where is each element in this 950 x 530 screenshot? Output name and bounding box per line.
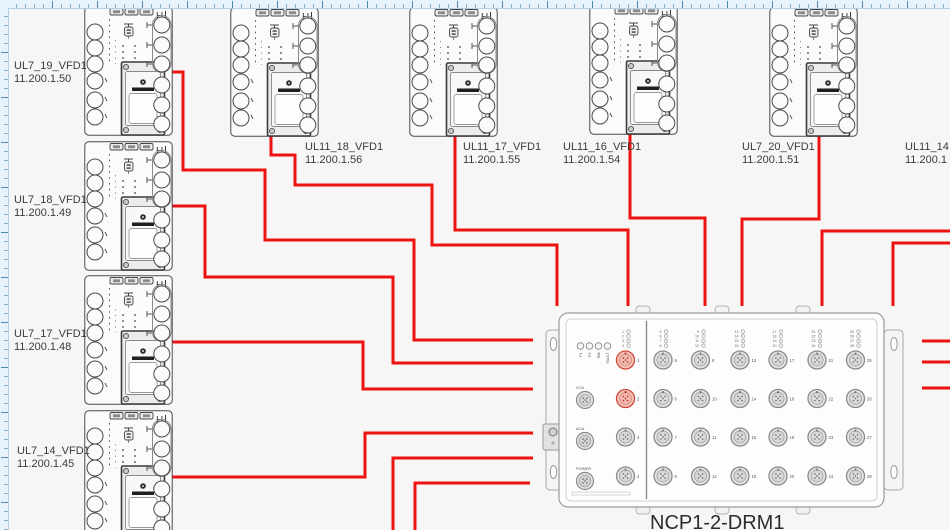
port-number: 24	[829, 474, 834, 479]
cable[interactable]	[172, 433, 533, 477]
port-led	[664, 334, 668, 338]
port-led	[664, 330, 668, 334]
port-led	[818, 334, 822, 338]
port-number: 25	[867, 358, 872, 363]
port-led-number: 16	[735, 344, 739, 348]
port-led-number: 15	[735, 339, 739, 343]
port-led-number: 27	[850, 339, 854, 343]
port-led	[741, 330, 745, 334]
port-led-number: 6	[660, 335, 662, 339]
status-led-label: P2	[588, 353, 592, 357]
device-label: UL11_18_VFD111.200.1.56	[305, 141, 383, 167]
diagram-canvas[interactable]: H	[0, 0, 950, 530]
port-led	[741, 344, 745, 348]
port-led	[779, 334, 783, 338]
port-number: 27	[867, 435, 872, 440]
port-led-number: 22	[812, 335, 816, 339]
ruler-vertical	[0, 8, 9, 530]
cable[interactable]	[893, 243, 950, 306]
vfd-device[interactable]	[770, 8, 857, 136]
port-number: 22	[829, 396, 834, 401]
port-number: 14	[752, 396, 757, 401]
device-label: UL7_20_VFD111.200.1.51	[742, 141, 815, 167]
port-led-number: 10	[695, 335, 699, 339]
status-led-rm	[595, 343, 602, 350]
port-led-number: 9	[697, 330, 699, 334]
status-led-label: FAULT	[606, 352, 610, 364]
port-led-number: 2	[622, 335, 624, 339]
port-led-number: 12	[695, 344, 699, 348]
port-led	[702, 330, 706, 334]
port-led	[627, 334, 631, 338]
device-label: UL7_18_VFD111.200.1.49	[14, 194, 87, 220]
port-led	[664, 339, 668, 343]
status-led-p1	[577, 343, 584, 350]
connector-power[interactable]: POWER	[576, 466, 594, 490]
port-number: 26	[867, 396, 872, 401]
connector-label: ACA	[576, 426, 585, 431]
vfd-device[interactable]	[590, 6, 677, 134]
port-led	[818, 330, 822, 334]
port-led-number: 7	[660, 339, 662, 343]
port-led	[627, 330, 631, 334]
port-led	[779, 339, 783, 343]
port-led	[779, 344, 783, 348]
port-led-number: 24	[812, 344, 816, 348]
status-led-p2	[586, 343, 593, 350]
cable[interactable]	[172, 342, 533, 389]
connector-label: V.24	[576, 385, 585, 390]
port-led-number: 18	[773, 335, 777, 339]
port-number: 15	[752, 435, 757, 440]
vfd-device[interactable]	[231, 8, 318, 136]
port-number: 11	[712, 435, 717, 440]
vfd-device[interactable]	[85, 7, 172, 135]
vfd-device[interactable]	[410, 8, 497, 136]
port-number: 13	[752, 358, 757, 363]
port-led-number: 3	[622, 339, 624, 343]
status-led-fault	[604, 343, 611, 350]
port-led	[857, 339, 861, 343]
port-led-number: 5	[660, 330, 662, 334]
ruler-horizontal	[8, 0, 950, 9]
port-led-number: 21	[812, 330, 816, 334]
port-number: 17	[790, 358, 795, 363]
vfd-device[interactable]	[85, 411, 172, 530]
status-led-label: RM	[597, 352, 601, 358]
port-led	[627, 344, 631, 348]
port-led-number: 4	[622, 344, 624, 348]
port-led	[779, 330, 783, 334]
port-number: 16	[752, 474, 757, 479]
port-led	[741, 334, 745, 338]
drm-title: NCP1-2-DRM1	[650, 512, 784, 530]
status-led-label: P1	[579, 353, 583, 357]
port-number: 28	[867, 474, 872, 479]
port-led-number: 1	[622, 330, 624, 334]
connector-label: POWER	[576, 466, 591, 471]
device-label: UL7_14_VFD111.200.1.45	[17, 445, 90, 471]
vfd-device[interactable]	[85, 142, 172, 270]
port-led	[818, 344, 822, 348]
port-number: 20	[790, 474, 795, 479]
port-led-number: 17	[773, 330, 777, 334]
port-led-number: 13	[735, 330, 739, 334]
port-led	[857, 330, 861, 334]
port-led-number: 19	[773, 339, 777, 343]
port-led-number: 28	[850, 344, 854, 348]
port-led	[818, 339, 822, 343]
port-led	[702, 344, 706, 348]
port-led	[741, 339, 745, 343]
port-led	[857, 344, 861, 348]
port-number: 19	[790, 435, 795, 440]
port-led-number: 8	[660, 344, 662, 348]
device-label: UL11_17_VFD111.200.1.55	[463, 141, 541, 167]
port-led	[702, 339, 706, 343]
port-led	[627, 339, 631, 343]
port-number: 10	[712, 396, 717, 401]
port-led	[857, 334, 861, 338]
port-led-number: 20	[773, 344, 777, 348]
port-number: 12	[712, 474, 717, 479]
device-label: UL11_16_VFD111.200.1.54	[563, 141, 641, 167]
port-led-number: 14	[735, 335, 739, 339]
port-number: 21	[829, 358, 834, 363]
device-label: UL7_19_VFD111.200.1.50	[14, 60, 87, 86]
cable[interactable]	[630, 133, 705, 306]
port-led	[664, 344, 668, 348]
drm-device[interactable]: P1P2RMFAULT V.24ACAPOWER 123456789101112…	[543, 306, 903, 514]
port-led-number: 11	[695, 339, 699, 343]
vfd-device[interactable]	[85, 276, 172, 404]
device-label: UL11_1411.200.1	[905, 141, 949, 167]
port-led-number: 25	[850, 330, 854, 334]
port-led	[702, 334, 706, 338]
port-number: 23	[829, 435, 834, 440]
port-led-number: 23	[812, 339, 816, 343]
port-led-number: 26	[850, 335, 854, 339]
cable[interactable]	[415, 483, 530, 530]
device-label: UL7_17_VFD111.200.1.48	[14, 328, 87, 354]
port-number: 18	[790, 396, 795, 401]
